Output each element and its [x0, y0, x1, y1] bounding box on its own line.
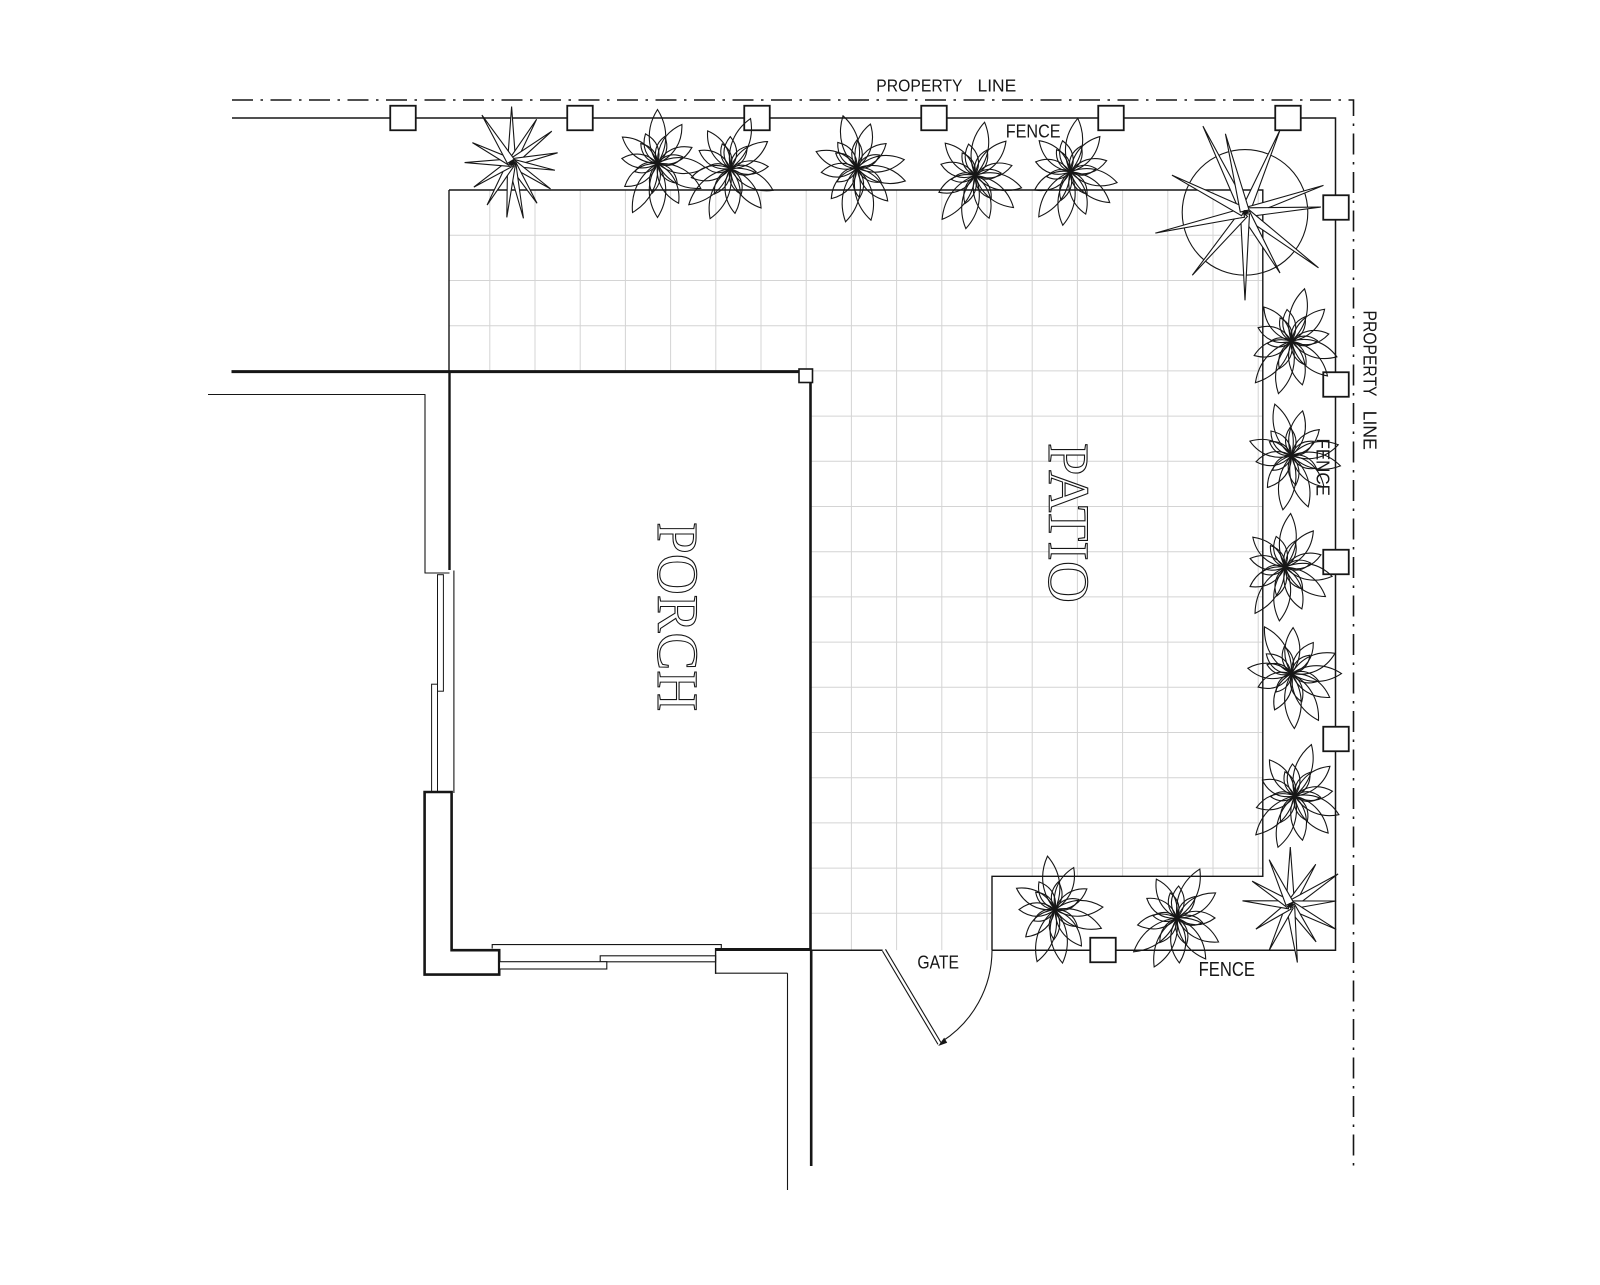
svg-text:FENCE: FENCE — [1006, 121, 1061, 142]
svg-text:PROPERTY: PROPERTY — [876, 76, 963, 95]
svg-text:LINE: LINE — [978, 76, 1017, 95]
svg-text:PORCH: PORCH — [645, 522, 710, 711]
svg-text:GATE: GATE — [917, 952, 959, 973]
svg-text:FENCE: FENCE — [1199, 958, 1255, 981]
svg-text:PATIO: PATIO — [1036, 443, 1101, 603]
svg-text:LINE: LINE — [1360, 411, 1381, 450]
svg-text:PROPERTY: PROPERTY — [1360, 311, 1381, 397]
svg-text:FENCE: FENCE — [1312, 439, 1333, 497]
